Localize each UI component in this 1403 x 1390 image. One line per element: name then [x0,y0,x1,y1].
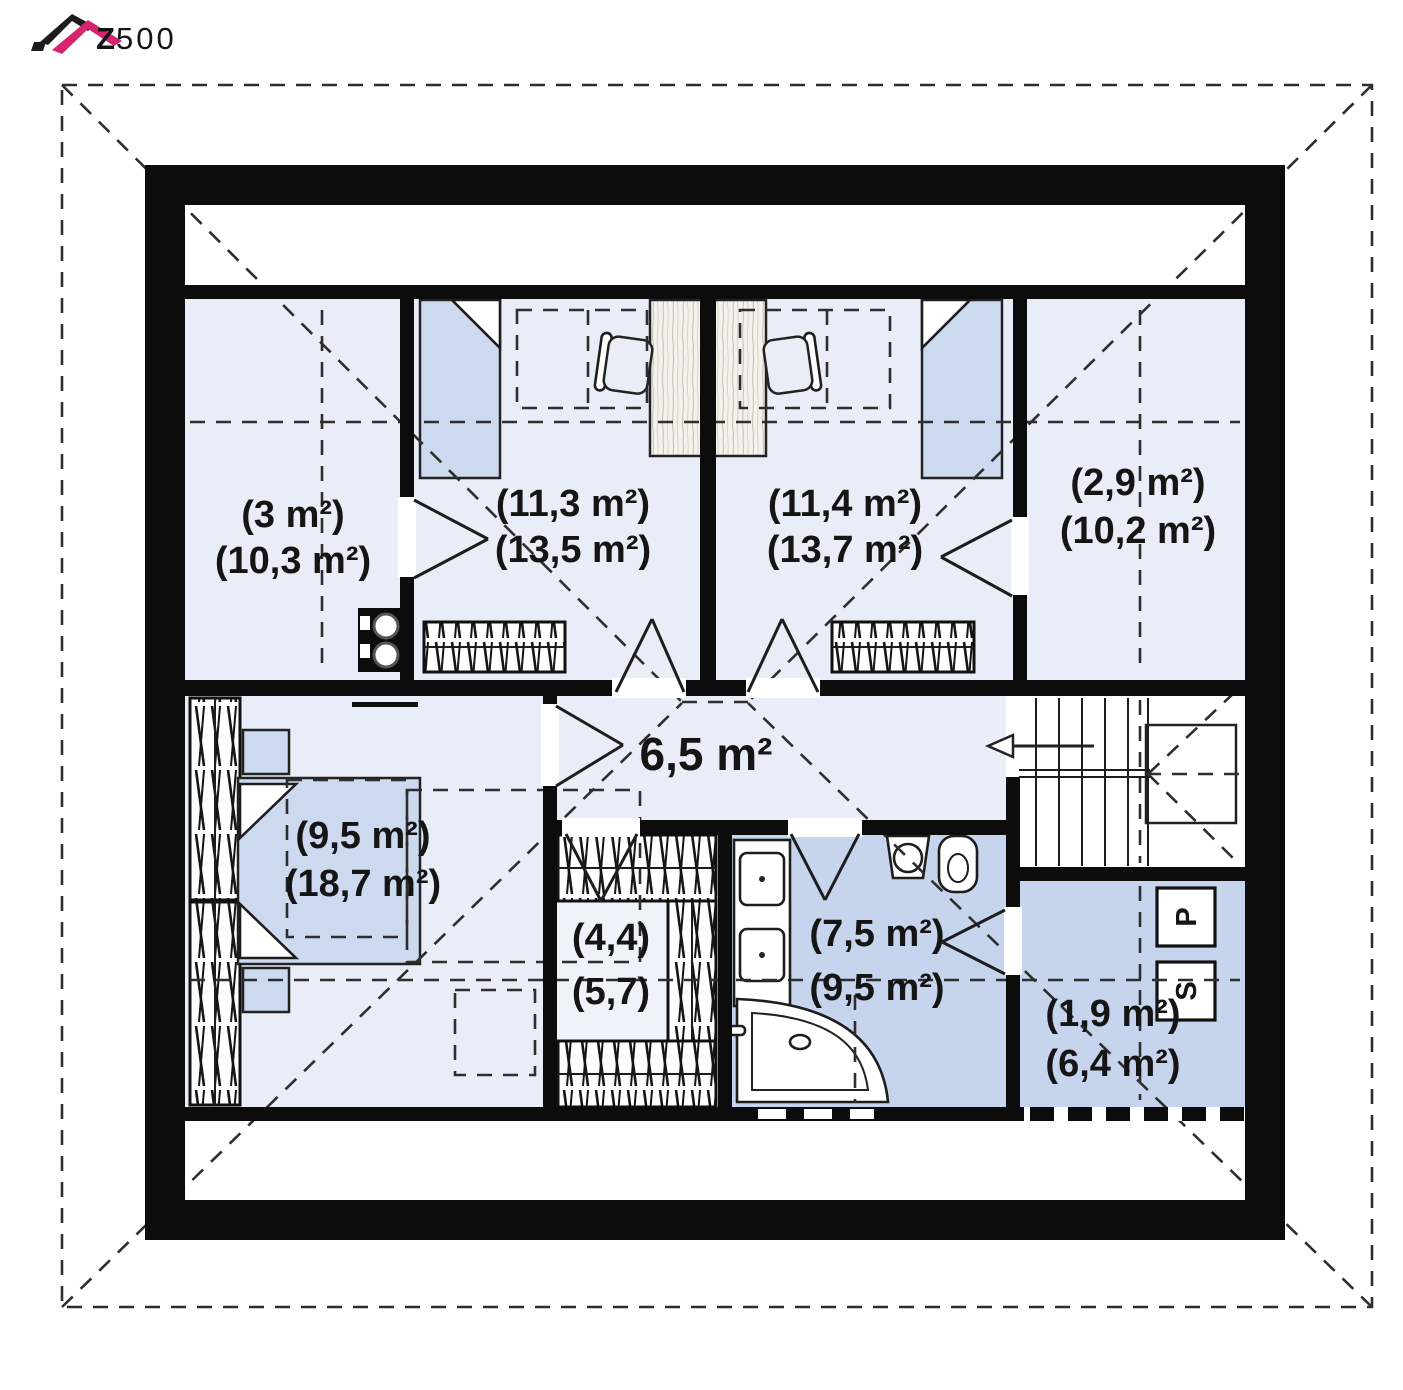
hall-floor [556,696,1006,820]
brand-logo: Z 500 [31,14,177,56]
wardrobe-room-area-total: (5,7) [572,971,650,1013]
room-top-left-area-total: (13,5 m²) [495,529,651,571]
attic-band-bottom [185,1120,1245,1200]
brand-wordmark-z: Z [96,21,116,56]
master-bedroom-area: (9,5 m²) [295,815,430,857]
washer-label: P [1171,907,1203,926]
nightstand-bottom [243,968,289,1012]
bathroom-area: (7,5 m²) [809,913,944,955]
brand-wordmark-digits: 500 [116,21,177,56]
wardrobe-left [424,622,565,672]
toilet [939,836,977,892]
stairwell-floor [1019,696,1245,867]
dryer-label: S [1171,981,1203,1000]
storage-top-left-area: (3 m²) [241,494,344,536]
storage-top-right-area: (2,9 m²) [1070,462,1205,504]
shelf [352,702,418,707]
attic-band-top [185,205,1245,285]
utility-room-area-total: (6,4 m²) [1045,1043,1180,1085]
exterior-wall-bottom [145,1200,1285,1240]
bed-single-left [420,300,500,478]
utility-room-area: (1,9 m²) [1045,993,1180,1035]
wardrobe-right [832,622,974,672]
floor-plan-page: (3 m²) (10,3 m²) (11,3 m²) (13,5 m²) (11… [0,0,1403,1390]
office-chair-right [762,332,822,397]
wardrobe-room-area: (4,4) [572,917,650,959]
room-top-left-area: (11,3 m²) [496,483,650,525]
master-bedroom-area-total: (18,7 m²) [285,863,441,905]
desk-left [650,300,702,456]
bed-single-right [922,300,1002,478]
exterior-wall-left [145,165,185,1240]
room-top-right-area-total: (13,7 m²) [767,529,923,571]
storage-top-left-area-total: (10,3 m²) [215,540,371,582]
room-top-right-area: (11,4 m²) [768,483,922,525]
floor-plan-drawing: (3 m²) (10,3 m²) (11,3 m²) (13,5 m²) (11… [0,0,1403,1390]
nightstand-top [243,730,289,774]
storage-top-right-area-total: (10,2 m²) [1060,510,1216,552]
exterior-wall-top [145,165,1285,205]
exterior-wall-right [1245,165,1285,1240]
master-wardrobe [190,698,240,1105]
bathroom-area-total: (9,5 m²) [809,967,944,1009]
hall-area: 6,5 m² [640,728,773,780]
office-chair-left [594,332,654,397]
roof-icon-base [31,42,46,51]
